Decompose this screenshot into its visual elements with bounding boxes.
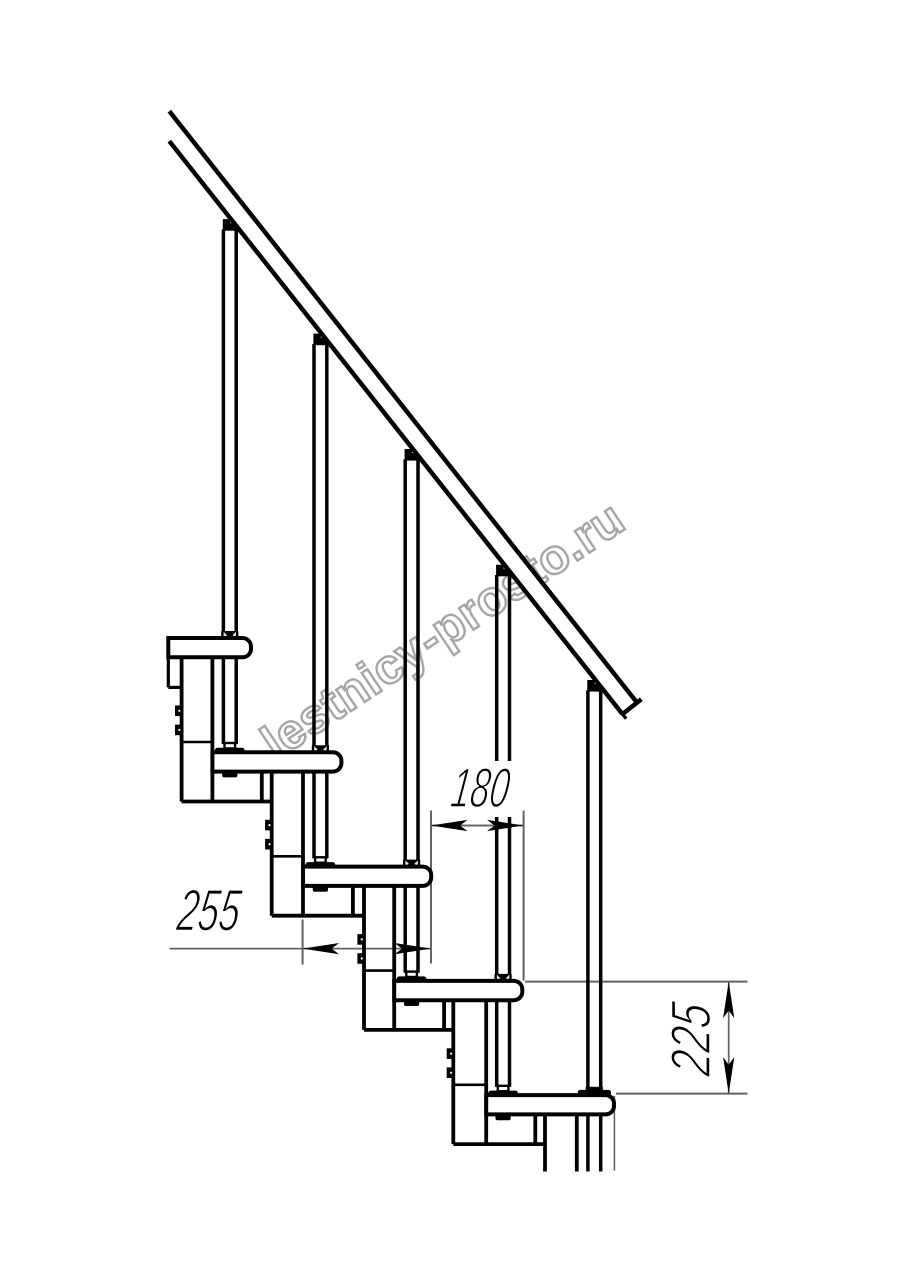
svg-text:180: 180 (448, 757, 514, 819)
svg-text:225: 225 (660, 999, 723, 1080)
svg-text:255: 255 (173, 877, 245, 944)
